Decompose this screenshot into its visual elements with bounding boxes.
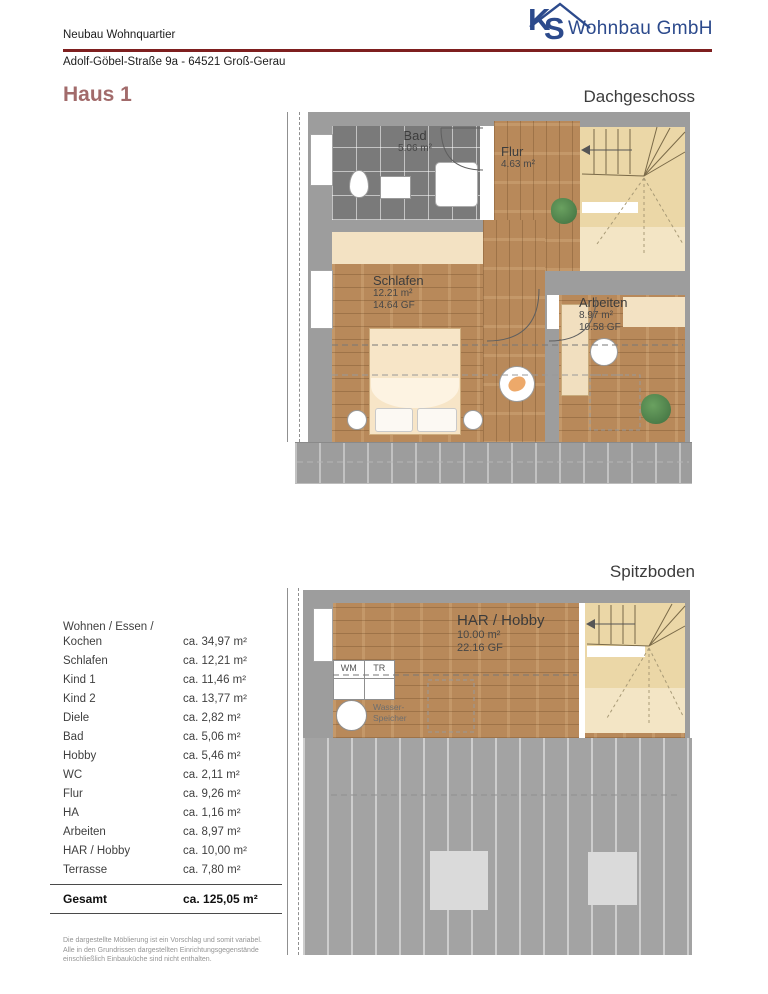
table-row: WC ca. 2,11 m² [50,764,282,783]
table-row: Wohnen / Essen / Kochen ca. 34,97 m² [50,612,282,650]
floor2-title: Spitzboden [610,562,695,582]
table-row: Arbeiten ca. 8,97 m² [50,821,282,840]
table-total-row: Gesamt ca. 125,05 m² [50,885,282,913]
stairs-symbol [582,127,685,254]
kneewall-dashed-lines [297,345,689,462]
logo-company-name: Wohnbau GmbH [568,18,713,40]
floorplan-spitzboden: WM TR Wasser- Speicher HAR / Hobby 10.00… [287,588,705,960]
table-row: Bad ca. 5,06 m² [50,726,282,745]
project-name: Neubau Wohnquartier [63,29,175,41]
table-row: HAR / Hobby ca. 10,00 m² [50,840,282,859]
plan1-linework [287,112,705,484]
table-row: HA ca. 1,16 m² [50,802,282,821]
table-row: Hobby ca. 5,46 m² [50,745,282,764]
floor1-title: Dachgeschoss [583,87,695,107]
area-table: Wohnen / Essen / Kochen ca. 34,97 m² Sch… [50,612,282,914]
table-row: Kind 2 ca. 13,77 m² [50,688,282,707]
plan2-linework [287,588,705,960]
disclaimer-text: Die dargestellte Möblierung ist ein Vors… [63,936,323,965]
table-divider [50,913,282,914]
table-row: Kind 1 ca. 11,46 m² [50,669,282,688]
stairs-symbol [587,604,685,726]
table-row: Flur ca. 9,26 m² [50,783,282,802]
company-logo: K S Wohnbau GmbH [524,2,724,52]
brochure-page: Neubau Wohnquartier K S Wohnbau GmbH Ado… [0,0,768,994]
table-row: Diele ca. 2,82 m² [50,707,282,726]
header-rule [63,49,712,52]
table-row: Schlafen ca. 12,21 m² [50,650,282,669]
door-arcs [441,128,596,341]
project-address: Adolf-Göbel-Straße 9a - 64521 Groß-Gerau [63,56,285,68]
page-title: Haus 1 [63,83,132,107]
floorplan-dachgeschoss: Bad 5.06 m² Flur 4.63 m² Schlafen 12.21 … [287,112,705,484]
table-row: Terrasse ca. 7,80 m² [50,859,282,878]
kneewall-dashed-lines [331,675,677,795]
logo-letter-s: S [544,11,565,47]
